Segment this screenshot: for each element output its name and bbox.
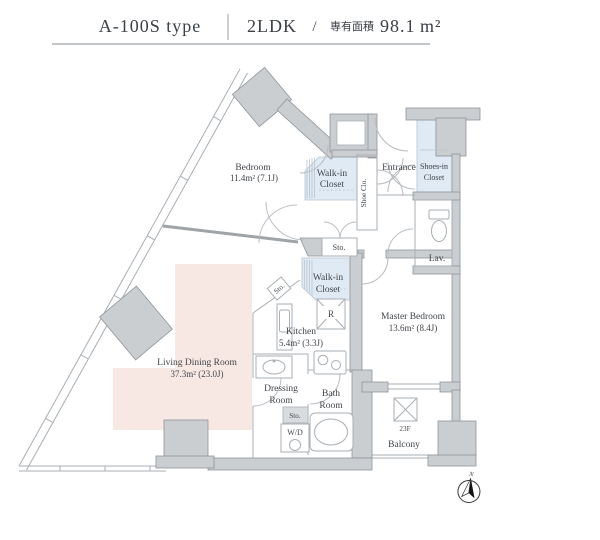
bedroom-label: Bedroom (235, 163, 271, 173)
wic-lower-label-2: Closet (316, 285, 341, 295)
kitchen-area: 5.4m² (3.3J) (279, 338, 323, 348)
area-label: 専有面積 (330, 19, 374, 33)
master-bottom-wall-left (362, 382, 388, 392)
wic-upper-label-1: Walk-in (317, 169, 348, 179)
bottom-wall (208, 458, 372, 470)
vanity-sink (256, 356, 292, 378)
dressing-room-label-2: Room (269, 396, 293, 406)
wic-upper-label-2: Closet (320, 180, 345, 190)
shoes-in-closet-label-1: Shoes-in (420, 162, 448, 171)
front-door-arc (375, 118, 408, 151)
storage-dressing-label: Sto. (289, 412, 301, 420)
floorplan-page: A-100S type 2LDK / 専有面積 98.1 m² (0, 0, 600, 540)
area-unit: m² (420, 16, 441, 36)
compass-north-label: N (468, 471, 475, 479)
stove (314, 351, 346, 374)
master-bedroom-label: Master Bedroom (381, 312, 446, 322)
master-door-arc (362, 258, 388, 284)
header: A-100S type 2LDK / 専有面積 98.1 m² (52, 14, 441, 44)
evacuation-hatch (394, 398, 417, 421)
pillar-bottom (164, 420, 208, 460)
toilet (429, 210, 449, 242)
north-compass: N (457, 470, 483, 504)
storage-hall-side-wall (300, 238, 323, 256)
dressing-room-label-1: Dressing (264, 384, 298, 394)
master-bedroom-area: 13.6m² (8.4J) (389, 323, 437, 333)
balcony-label: Balcony (388, 440, 420, 450)
refrigerator-label: R (328, 309, 334, 319)
master-left-wall (350, 253, 362, 372)
shoes-in-closet-label-2: Closet (424, 173, 445, 182)
bedroom-bottom-wall (163, 226, 298, 242)
storage-hall-label: Sto. (333, 243, 346, 252)
pillar-bottom-base (156, 456, 214, 468)
duct-shaft-inner (337, 121, 365, 145)
bath-room-label-2: Room (319, 401, 343, 411)
living-dining-area: 37.3m² (23.0J) (171, 369, 224, 379)
pillar-diagonal (100, 286, 173, 360)
balcony-floor-label: 23F (399, 425, 410, 433)
balcony-right-wall (452, 390, 460, 422)
wic-upper-top-wall (332, 150, 377, 157)
entrance-label: Entrance (382, 163, 416, 173)
bath-room-label-1: Bath (322, 389, 340, 399)
wic-lower-label-1: Walk-in (313, 273, 344, 283)
header-separator: / (312, 19, 317, 35)
plan-type-name: A-100S type (99, 16, 202, 36)
kitchen-label: Kitchen (286, 327, 316, 337)
lav-bottom-wall (413, 266, 460, 274)
shoe-closet-label: Shoe Clo. (360, 179, 368, 208)
pillar-balcony-base (428, 455, 476, 466)
bedroom-area: 11.4m² (7.1J) (230, 173, 278, 183)
floorplan-drawing: A-100S type 2LDK / 専有面積 98.1 m² (0, 0, 600, 540)
lavatory-label: Lav. (429, 254, 446, 264)
living-dining-label: Living Dining Room (157, 358, 237, 368)
layout-type: 2LDK (247, 16, 297, 36)
pillar-balcony (438, 421, 476, 457)
sic-lav-divider-wall (413, 192, 460, 200)
pillar-top (232, 67, 291, 126)
bathtub (310, 413, 353, 451)
washer-dryer-label: W/D (287, 428, 303, 437)
area-value: 98.1 (380, 16, 416, 36)
